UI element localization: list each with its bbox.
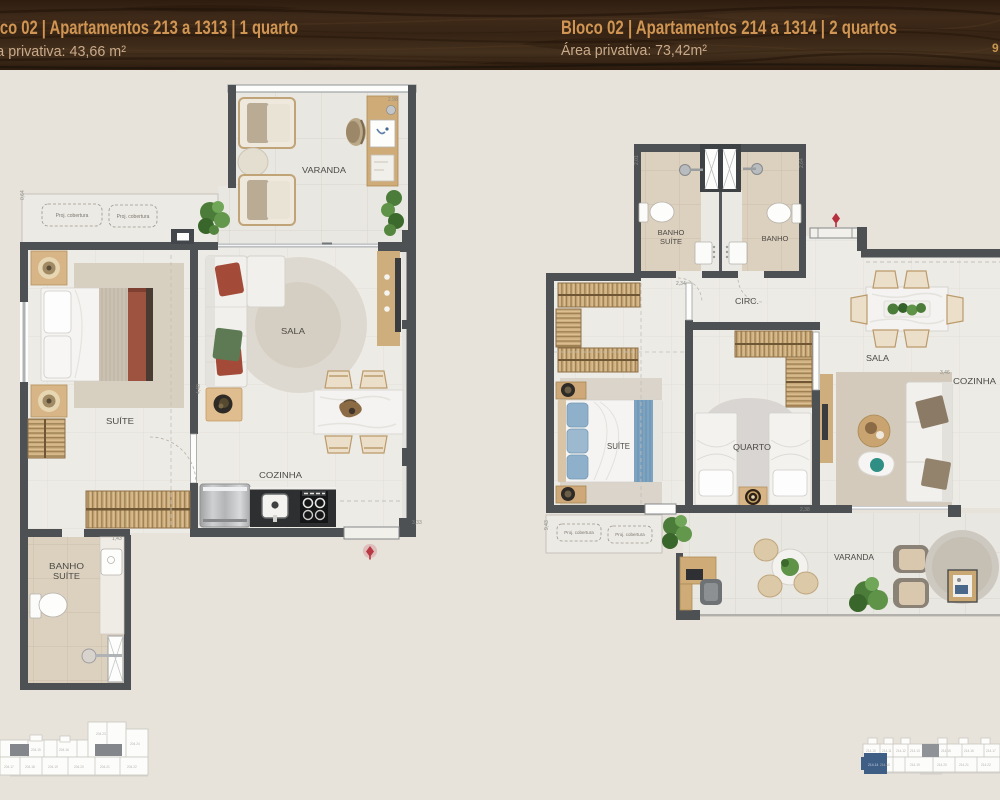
svg-text:BANHO: BANHO bbox=[658, 228, 685, 237]
svg-text:204.23: 204.23 bbox=[96, 732, 106, 736]
svg-text:2,01: 2,01 bbox=[634, 155, 640, 165]
svg-text:214.17: 214.17 bbox=[986, 749, 996, 753]
svg-text:214.10: 214.10 bbox=[866, 749, 876, 753]
svg-text:214.18: 214.18 bbox=[880, 763, 890, 767]
svg-text:204.22: 204.22 bbox=[127, 765, 137, 769]
svg-text:214.14: 214.14 bbox=[868, 763, 878, 767]
svg-text:0,64: 0,64 bbox=[20, 190, 26, 200]
svg-text:SUÍTE: SUÍTE bbox=[53, 572, 80, 581]
svg-text:QUARTO: QUARTO bbox=[733, 443, 771, 452]
svg-text:COZINHA: COZINHA bbox=[953, 377, 997, 386]
svg-text:214.11: 214.11 bbox=[882, 749, 892, 753]
svg-text:VARANDA: VARANDA bbox=[302, 165, 346, 175]
svg-text:COZINHA: COZINHA bbox=[259, 470, 302, 480]
svg-text:Proj. cobertura: Proj. cobertura bbox=[564, 530, 594, 535]
svg-text:VARANDA: VARANDA bbox=[834, 553, 875, 562]
svg-text:9,43: 9,43 bbox=[544, 520, 550, 530]
svg-text:Bloco 02 | Apartamentos 213 a: Bloco 02 | Apartamentos 213 a 1313 | 1 q… bbox=[0, 18, 298, 39]
svg-text:2,38: 2,38 bbox=[800, 507, 810, 513]
svg-text:204.17: 204.17 bbox=[4, 765, 14, 769]
svg-text:214.16: 214.16 bbox=[964, 749, 974, 753]
svg-text:214.15: 214.15 bbox=[941, 749, 951, 753]
svg-text:214.20: 214.20 bbox=[937, 763, 947, 767]
svg-text:Proj. cobertura: Proj. cobertura bbox=[56, 213, 89, 219]
svg-text:214.21: 214.21 bbox=[959, 763, 969, 767]
svg-text:204.16: 204.16 bbox=[59, 748, 69, 752]
svg-text:SALA: SALA bbox=[866, 354, 890, 363]
svg-text:SUÍTE: SUÍTE bbox=[106, 416, 134, 426]
svg-text:204.24: 204.24 bbox=[130, 742, 140, 746]
svg-text:1,43: 1,43 bbox=[112, 536, 122, 542]
svg-text:Área privativa: 73,42m²: Área privativa: 73,42m² bbox=[561, 42, 707, 59]
svg-text:214.22: 214.22 bbox=[981, 763, 991, 767]
svg-text:Bloco 02 | Apartamentos 214 a: Bloco 02 | Apartamentos 214 a 1314 | 2 q… bbox=[561, 18, 897, 39]
svg-text:4,40: 4,40 bbox=[196, 384, 202, 394]
svg-text:SUÍTE: SUÍTE bbox=[607, 442, 630, 451]
svg-text:BANHO: BANHO bbox=[49, 562, 84, 571]
svg-text:204.15: 204.15 bbox=[31, 748, 41, 752]
svg-text:SALA: SALA bbox=[281, 326, 305, 336]
svg-text:Proj. cobertura: Proj. cobertura bbox=[615, 532, 645, 537]
svg-text:Área privativa: 43,66 m²: Área privativa: 43,66 m² bbox=[0, 43, 126, 60]
svg-text:214.19: 214.19 bbox=[910, 763, 920, 767]
svg-text:214.12: 214.12 bbox=[896, 749, 906, 753]
svg-text:204.21: 204.21 bbox=[100, 765, 110, 769]
svg-text:CIRC.: CIRC. bbox=[735, 297, 759, 306]
svg-text:BANHO: BANHO bbox=[762, 234, 789, 243]
svg-text:2.98: 2.98 bbox=[388, 97, 398, 103]
svg-text:2,34: 2,34 bbox=[676, 281, 686, 287]
svg-text:204.20: 204.20 bbox=[74, 765, 84, 769]
svg-text:SUÍTE: SUÍTE bbox=[660, 237, 682, 246]
svg-text:3,46: 3,46 bbox=[940, 370, 950, 376]
svg-text:2,64: 2,64 bbox=[799, 158, 805, 168]
svg-text:214.13: 214.13 bbox=[910, 749, 920, 753]
svg-text:204.19: 204.19 bbox=[48, 765, 58, 769]
svg-text:9: 9 bbox=[992, 41, 999, 55]
svg-text:Proj. cobertura: Proj. cobertura bbox=[117, 214, 150, 220]
svg-text:204.18: 204.18 bbox=[25, 765, 35, 769]
svg-text:3,33: 3,33 bbox=[412, 520, 422, 526]
